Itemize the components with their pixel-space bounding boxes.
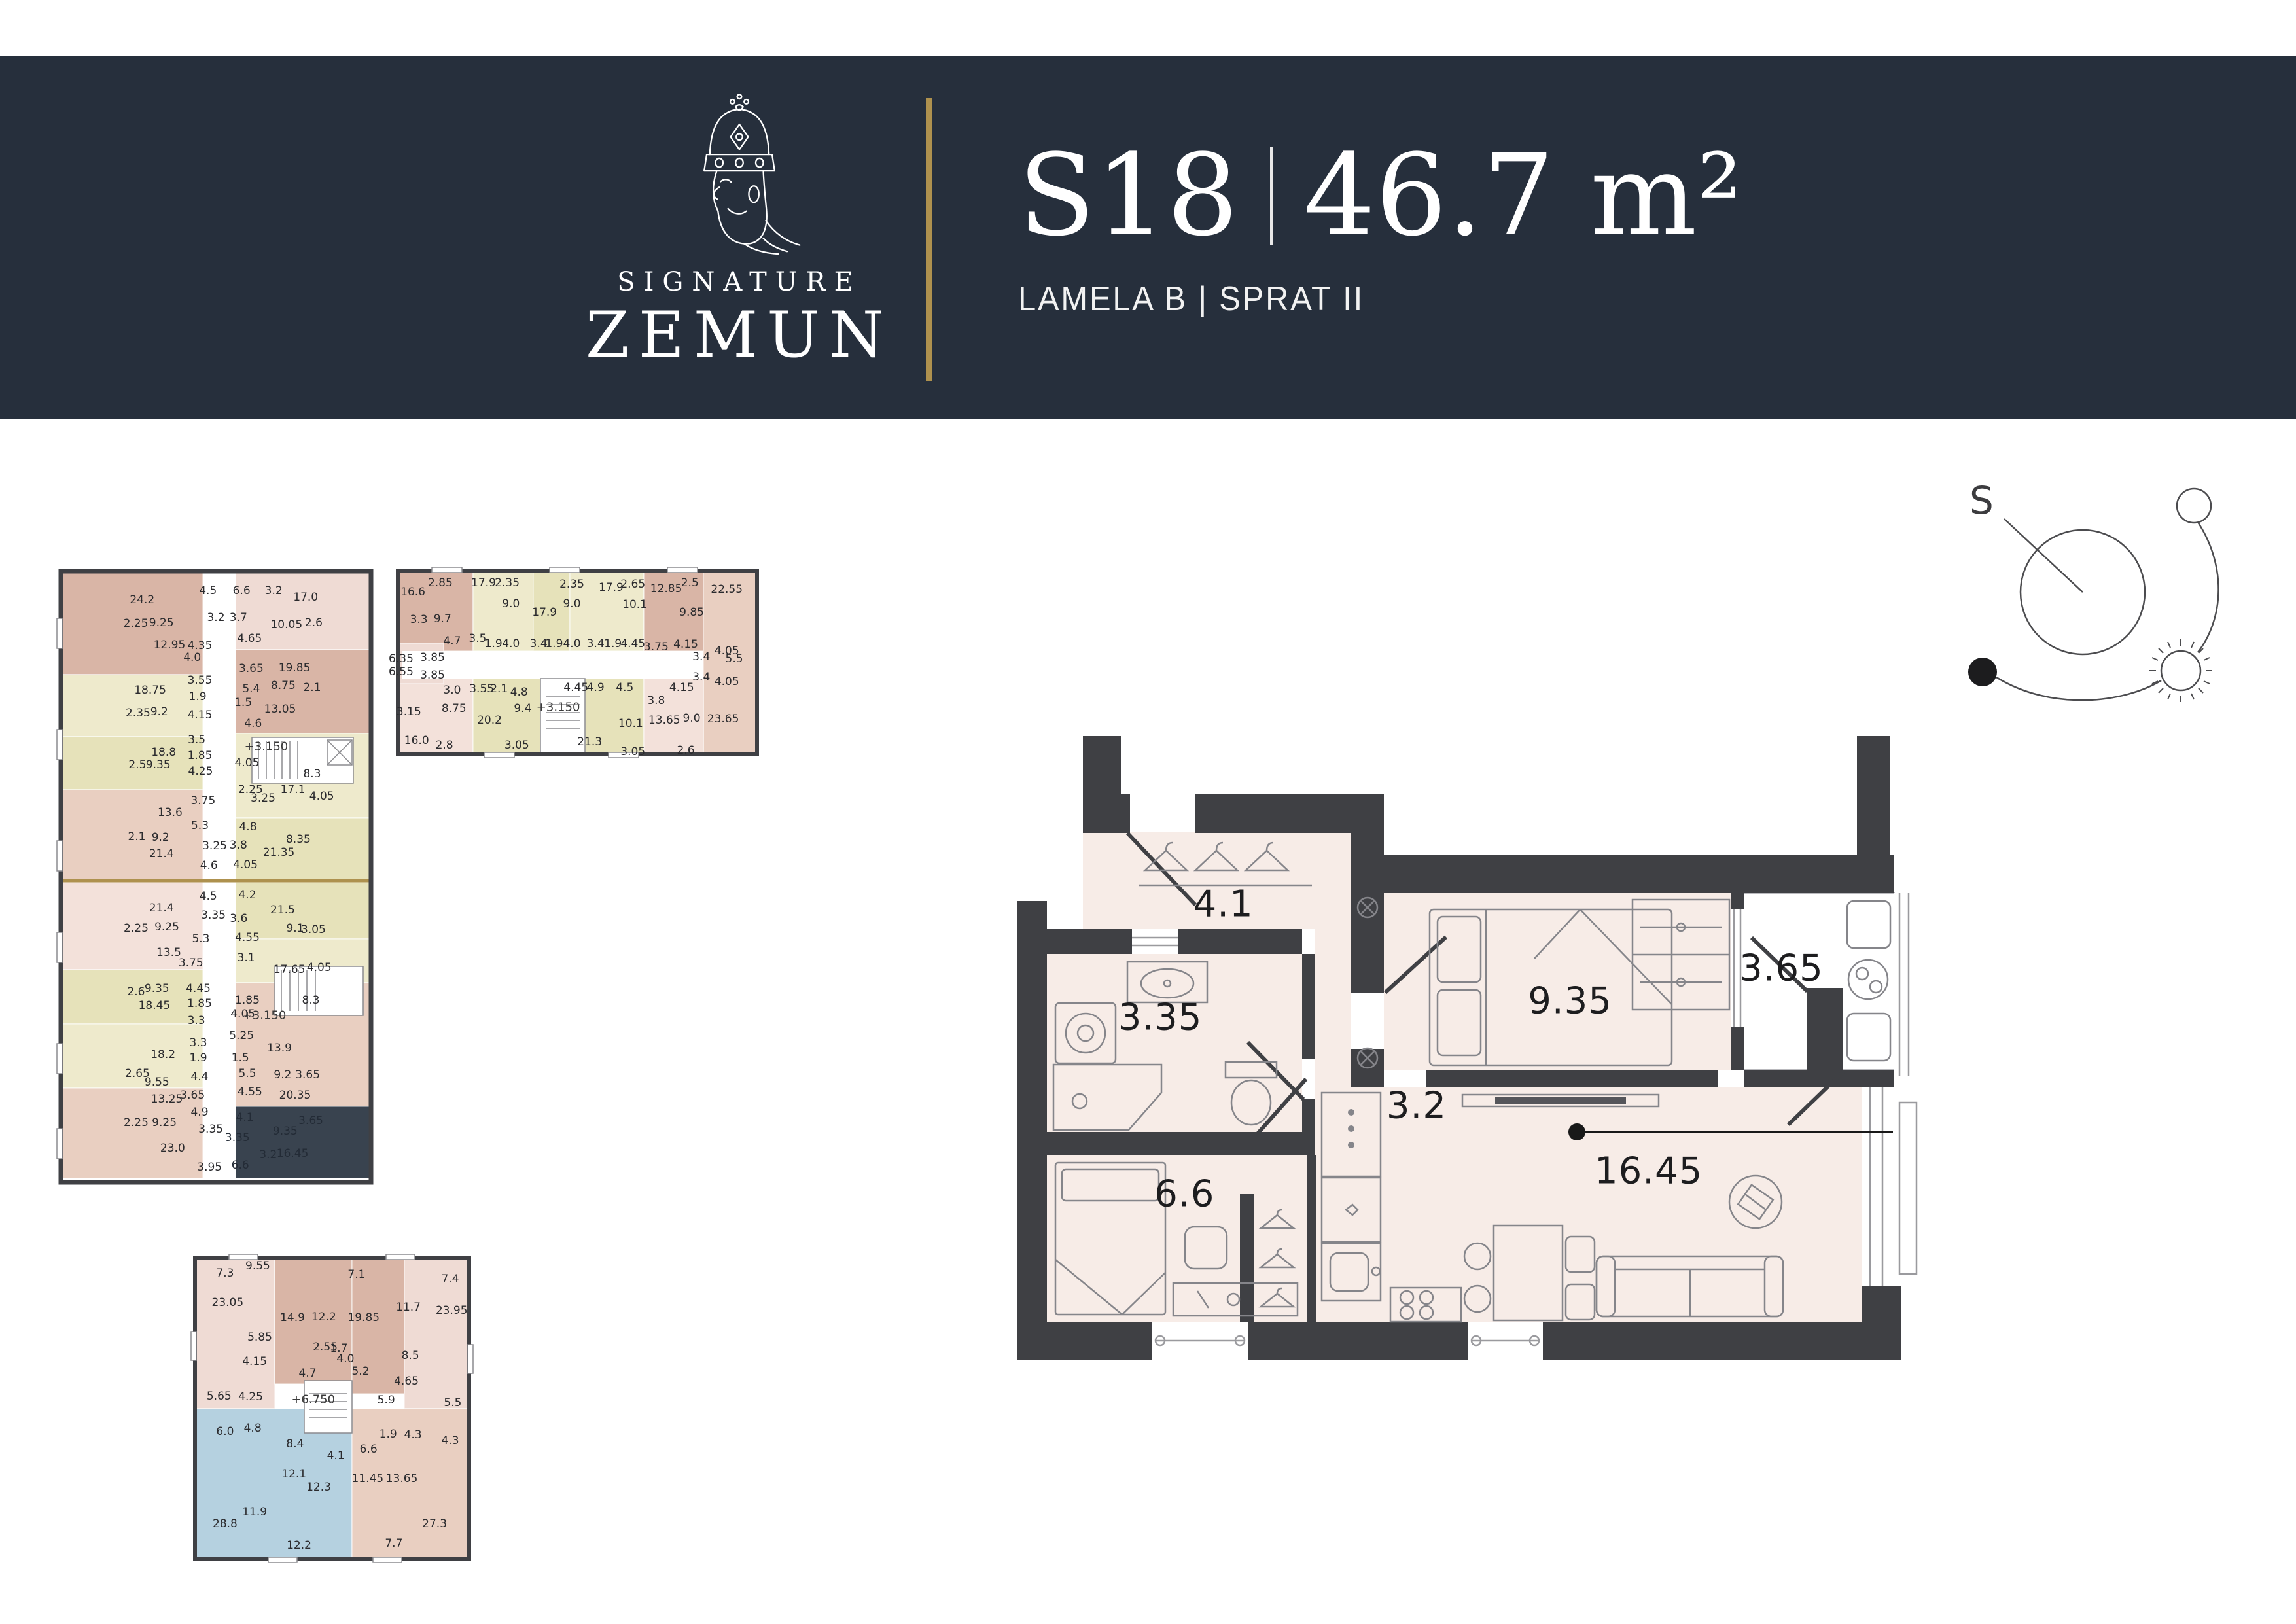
- area-label: +6.750: [291, 1393, 335, 1407]
- area-label: 4.05: [233, 858, 258, 872]
- area-label: 3.3: [188, 1014, 205, 1027]
- area-label: 17.0: [293, 591, 318, 604]
- area-label: 8.75: [271, 679, 296, 692]
- area-label: 7.4: [441, 1273, 459, 1286]
- area-label: 4.3: [441, 1434, 459, 1447]
- area-label: 9.35: [273, 1125, 298, 1138]
- area-label: 9.85: [679, 606, 704, 619]
- area-label: 4.55: [235, 931, 260, 944]
- area-label: 4.1: [236, 1111, 254, 1124]
- area-label: 4.5: [199, 584, 217, 597]
- area-label: 3.05: [504, 739, 529, 752]
- key-plan-level2-tall: 24.24.56.63.217.02.259.253.23.710.052.61…: [56, 566, 376, 1188]
- area-label: 3.2: [265, 584, 283, 597]
- area-label: 18.2: [150, 1048, 175, 1061]
- area-label: 5.4: [242, 682, 260, 696]
- area-label: 1.9: [604, 637, 622, 650]
- area-label: 2.1: [490, 682, 508, 696]
- area-label: 4.7: [299, 1367, 317, 1380]
- area-label: 5.3: [192, 932, 209, 945]
- area-label: 4.45: [563, 681, 588, 694]
- area-label: 23.95: [436, 1304, 468, 1317]
- area-label: 21.4: [149, 847, 174, 860]
- area-label: 22.55: [711, 583, 743, 596]
- area-label: 5.5: [726, 652, 743, 665]
- area-label: 3.65: [298, 1114, 323, 1127]
- area-label: 4.25: [188, 765, 213, 778]
- area-label: 5.5: [444, 1396, 461, 1409]
- area-label: 13.6: [158, 806, 183, 819]
- area-label: 18.8: [151, 746, 176, 759]
- area-label: 10.1: [622, 598, 647, 611]
- area-label: 4.6: [244, 717, 262, 730]
- area-label: 4.6: [200, 859, 218, 872]
- area-label: 3.7: [230, 611, 247, 624]
- area-label: 2.1: [303, 681, 321, 694]
- area-label: 3.35: [198, 1123, 223, 1136]
- area-label: 2.65: [620, 578, 645, 591]
- header-band: SIGNATURE ZEMUN S18 46.7 m² LAMELA B | S…: [0, 56, 2296, 419]
- area-label: 2.25: [124, 617, 149, 630]
- area-label: 1.9: [189, 690, 207, 703]
- area-label: 13.65: [648, 714, 680, 727]
- area-label: 3.65: [239, 662, 264, 675]
- area-label: 4.8: [239, 821, 256, 834]
- area-label: 5.65: [207, 1390, 232, 1403]
- area-label: 2.5: [128, 758, 146, 771]
- area-label: 1.5: [234, 696, 252, 709]
- area-label: 4.0: [336, 1352, 354, 1366]
- area-label: 1.85: [187, 997, 212, 1010]
- area-label: 3.75: [190, 794, 215, 807]
- area-label: 4.8: [244, 1422, 262, 1435]
- area-label: 3.2: [207, 611, 224, 624]
- area-label: 6.6: [360, 1443, 378, 1456]
- area-label: 3.4: [692, 671, 710, 684]
- area-label: 2.5: [681, 576, 699, 590]
- area-label: 2.6: [127, 985, 145, 998]
- area-label: 3.25: [251, 792, 275, 805]
- area-label: 23.05: [212, 1296, 244, 1309]
- area-label: 2.8: [436, 739, 453, 752]
- area-label: 21.5: [270, 904, 295, 917]
- area-label: 3.25: [202, 839, 227, 853]
- area-label: 3.4: [692, 650, 710, 663]
- area-label: 8.35: [286, 833, 311, 846]
- area-label: 3.8: [230, 839, 247, 852]
- area-label: 4.4: [190, 1070, 208, 1084]
- area-label: +3.150: [537, 700, 580, 714]
- unit-id: S18: [1018, 139, 1239, 252]
- area-label: 17.9: [471, 576, 496, 590]
- area-label: 4.2: [238, 889, 256, 902]
- area-label: 17.9: [532, 606, 557, 619]
- area-label: 11.7: [396, 1301, 421, 1314]
- area-label: 18.45: [139, 999, 171, 1012]
- area-label: 21.4: [149, 902, 174, 915]
- area-label: 9.25: [149, 616, 174, 629]
- area-label: 4.0: [563, 637, 580, 650]
- area-label: 7.1: [347, 1268, 365, 1281]
- area-label: 20.35: [279, 1089, 311, 1102]
- area-label: 5.9: [378, 1394, 395, 1407]
- area-label: 10.1: [618, 717, 643, 730]
- area-label: +3.150: [243, 1008, 287, 1022]
- area-label: +3.150: [245, 739, 289, 753]
- area-label: 5.2: [351, 1365, 369, 1378]
- gold-divider: [926, 98, 932, 381]
- brand-signature: SIGNATURE: [569, 267, 910, 297]
- area-label: 4.15: [673, 638, 698, 651]
- area-label: 2.1: [128, 830, 145, 843]
- area-label: 4.9: [190, 1106, 208, 1119]
- area-label: 5.85: [247, 1331, 272, 1344]
- area-label: 21.3: [577, 735, 602, 749]
- area-label: 9.2: [150, 705, 168, 718]
- king-logo-icon: [667, 92, 811, 255]
- key-plan-3-labels: 7.39.557.17.423.0514.912.219.8511.723.95…: [190, 1253, 474, 1564]
- area-label: 4.05: [715, 675, 739, 688]
- area-label: 12.2: [287, 1539, 311, 1552]
- area-label: 6.6: [1154, 1173, 1214, 1215]
- area-label: 1.9: [380, 1428, 397, 1441]
- area-label: 9.55: [245, 1260, 270, 1273]
- unit-location-subtitle: LAMELA B | SPRAT II: [1018, 279, 1699, 319]
- area-label: 4.15: [188, 709, 213, 722]
- area-label: 4.0: [502, 637, 520, 650]
- area-label: 7.3: [216, 1267, 234, 1280]
- area-label: 9.0: [502, 597, 520, 610]
- area-label: 16.45: [1595, 1150, 1703, 1193]
- area-label: 9.35: [1528, 980, 1612, 1023]
- area-label: 3.3: [410, 613, 428, 626]
- area-label: 2.85: [428, 576, 453, 590]
- area-label: 3.5: [188, 733, 205, 747]
- area-label: 21.35: [263, 846, 295, 859]
- area-label: 4.15: [242, 1355, 267, 1368]
- area-label: 4.05: [235, 756, 260, 769]
- area-label: 9.7: [434, 612, 451, 626]
- area-label: 3.65: [1739, 947, 1824, 990]
- area-label: 17.1: [281, 783, 306, 796]
- area-label: 19.85: [347, 1311, 380, 1324]
- area-label: 8.4: [286, 1438, 304, 1451]
- key-plan-1-labels: 24.24.56.63.217.02.259.253.23.710.052.61…: [56, 566, 376, 1188]
- area-label: 13.9: [267, 1042, 292, 1055]
- main-floor-plan: 4.13.359.353.656.63.216.45: [1017, 736, 1920, 1364]
- area-label: 6.55: [389, 665, 414, 679]
- area-label: 13.5: [156, 946, 181, 959]
- area-label: 4.05: [309, 790, 334, 803]
- area-label: 4.15: [669, 681, 694, 694]
- area-label: 8.75: [442, 702, 467, 715]
- area-label: 3.75: [179, 957, 203, 970]
- area-label: 5.5: [238, 1067, 256, 1080]
- area-label: 5.25: [229, 1029, 254, 1042]
- unit-area: 46.7 m²: [1304, 139, 1742, 252]
- area-label: 3.35: [1118, 997, 1203, 1039]
- area-label: 11.45: [352, 1472, 384, 1485]
- area-label: 3.2: [1386, 1085, 1447, 1127]
- area-label: 9.0: [683, 712, 701, 725]
- brochure-page: SIGNATURE ZEMUN S18 46.7 m² LAMELA B | S…: [0, 0, 2296, 1624]
- area-label: 4.05: [307, 961, 332, 974]
- area-label: 4.1: [327, 1449, 345, 1462]
- area-label: 3.5: [468, 632, 486, 645]
- area-label: 3.35: [201, 909, 226, 922]
- area-label: 4.35: [188, 639, 213, 652]
- area-label: 4.65: [238, 632, 262, 645]
- area-label: 16.0: [404, 734, 429, 747]
- area-label: 28.8: [213, 1517, 238, 1530]
- area-label: 17.9: [599, 581, 624, 594]
- key-plan-2-labels: 16.62.8517.92.352.3517.92.6512.852.522.5…: [393, 566, 762, 759]
- sun-path-diagram: S: [1934, 455, 2248, 703]
- area-label: 3.2: [259, 1148, 277, 1161]
- area-label: 14.9: [280, 1311, 305, 1324]
- area-label: 24.2: [130, 593, 154, 607]
- area-label: 13.05: [264, 703, 296, 716]
- area-label: 6.6: [233, 584, 251, 597]
- area-label: 9.35: [146, 758, 171, 771]
- area-label: 4.5: [200, 890, 217, 903]
- area-label: 23.0: [160, 1142, 185, 1155]
- brand-logo: SIGNATURE ZEMUN: [569, 92, 910, 419]
- area-label: 9.25: [152, 1116, 177, 1129]
- area-label: 6.0: [216, 1425, 234, 1438]
- area-label: 3.65: [295, 1068, 320, 1082]
- area-label: 1.9: [190, 1051, 207, 1065]
- area-label: 3.85: [420, 669, 445, 682]
- area-label: 13.25: [151, 1093, 183, 1106]
- area-label: 9.2: [274, 1068, 291, 1082]
- title-separator: [1270, 147, 1273, 245]
- area-label: 3.85: [420, 651, 445, 664]
- area-label: 9.2: [152, 831, 169, 844]
- area-label: 20.2: [477, 714, 502, 727]
- area-label: 12.1: [281, 1468, 306, 1481]
- area-label: 10.05: [270, 618, 302, 631]
- area-label: 3.3: [190, 1036, 207, 1050]
- area-label: 4.45: [186, 982, 211, 995]
- area-label: 2.25: [124, 922, 149, 935]
- area-label: 5.3: [191, 819, 209, 832]
- area-label: 9.0: [563, 597, 580, 610]
- area-label: 3.95: [197, 1161, 222, 1174]
- area-label: 4.5: [616, 681, 633, 694]
- area-label: 19.85: [279, 662, 311, 675]
- area-label: 3.8: [647, 694, 665, 707]
- area-label: 7.7: [385, 1537, 402, 1550]
- sun-icon: [2149, 639, 2212, 702]
- area-label: 18.75: [134, 684, 166, 697]
- area-label: 3.55: [188, 674, 213, 687]
- area-label: 3.75: [644, 641, 669, 654]
- area-label: 8.3: [302, 994, 320, 1007]
- area-label: 2.35: [126, 707, 150, 720]
- area-label: 4.7: [443, 635, 461, 648]
- area-label: 4.9: [587, 681, 605, 694]
- area-label: 6.6: [232, 1159, 249, 1172]
- area-label: 9.35: [145, 982, 169, 995]
- area-label: 1.5: [232, 1051, 249, 1065]
- area-label: 2.35: [559, 578, 584, 591]
- area-label: 2.35: [495, 576, 520, 590]
- area-label: 4.55: [238, 1086, 262, 1099]
- main-plan-room-labels: 4.13.359.353.656.63.216.45: [1017, 736, 1920, 1364]
- key-plan-level2-wide: 16.62.8517.92.352.3517.92.6512.852.522.5…: [393, 566, 762, 759]
- area-label: 27.3: [422, 1517, 447, 1530]
- area-label: 17.65: [274, 963, 306, 976]
- area-label: 3.05: [301, 923, 326, 936]
- area-label: 8.3: [303, 768, 321, 781]
- brand-zemun: ZEMUN: [569, 298, 910, 372]
- area-label: 4.0: [183, 651, 201, 664]
- area-label: 12.85: [650, 582, 682, 595]
- area-label: 3.1: [238, 951, 255, 964]
- south-label: S: [1969, 478, 1994, 523]
- area-label: 23.65: [707, 713, 739, 726]
- area-label: 3.4: [587, 637, 605, 650]
- area-label: 12.95: [154, 639, 186, 652]
- area-label: 13.65: [386, 1472, 418, 1485]
- area-label: 1.85: [188, 749, 213, 762]
- area-label: 3.0: [443, 684, 461, 697]
- area-label: 9.25: [154, 921, 179, 934]
- area-label: 9.55: [145, 1076, 169, 1089]
- area-label: 11.9: [242, 1506, 267, 1519]
- key-plan-level3: 7.39.557.17.423.0514.912.219.8511.723.95…: [190, 1253, 474, 1564]
- area-label: 2.6: [677, 744, 695, 757]
- area-label: 3.65: [180, 1089, 205, 1102]
- area-label: 1.85: [235, 994, 260, 1007]
- area-label: 4.65: [394, 1375, 419, 1388]
- area-label: 2.6: [305, 616, 323, 629]
- sun-path-icon: S: [1934, 455, 2248, 703]
- area-label: 1.9: [485, 637, 503, 650]
- area-label: 16.45: [277, 1147, 309, 1160]
- area-label: 12.3: [306, 1481, 331, 1494]
- area-label: 6.35: [389, 652, 414, 665]
- area-label: 3.35: [225, 1131, 250, 1144]
- area-label: 3.6: [230, 912, 247, 925]
- area-label: 4.3: [404, 1428, 422, 1441]
- area-label: 9.4: [514, 702, 531, 715]
- area-label: 3.15: [397, 705, 421, 718]
- area-label: 2.25: [124, 1116, 149, 1129]
- area-label: 4.1: [1193, 883, 1254, 926]
- area-label: 4.45: [620, 637, 645, 650]
- area-label: 4.25: [238, 1390, 263, 1403]
- area-label: 8.5: [402, 1349, 419, 1362]
- area-label: 3.05: [620, 745, 645, 758]
- area-label: 4.8: [510, 686, 528, 699]
- area-label: 12.2: [311, 1311, 336, 1324]
- area-label: 1.9: [545, 637, 563, 650]
- area-label: 16.6: [400, 586, 425, 599]
